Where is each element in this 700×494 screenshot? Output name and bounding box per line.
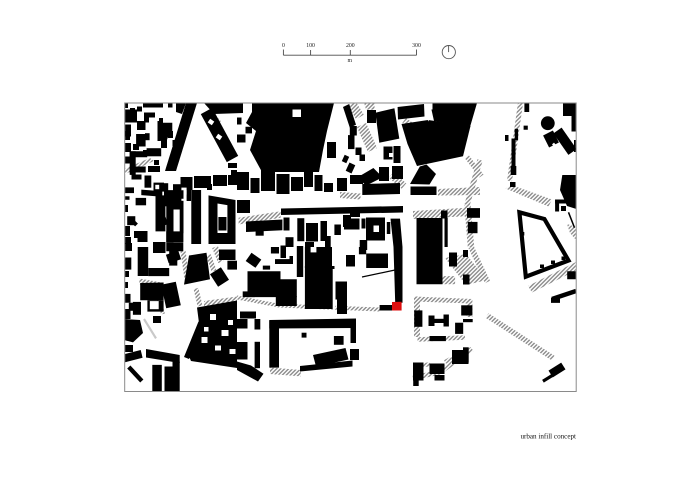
svg-text:m: m bbox=[348, 58, 353, 64]
svg-text:100: 100 bbox=[306, 43, 315, 49]
svg-text:300: 300 bbox=[412, 43, 421, 49]
svg-text:urban infill concept: urban infill concept bbox=[520, 433, 576, 441]
svg-text:0: 0 bbox=[282, 43, 285, 49]
svg-text:200: 200 bbox=[346, 43, 355, 49]
